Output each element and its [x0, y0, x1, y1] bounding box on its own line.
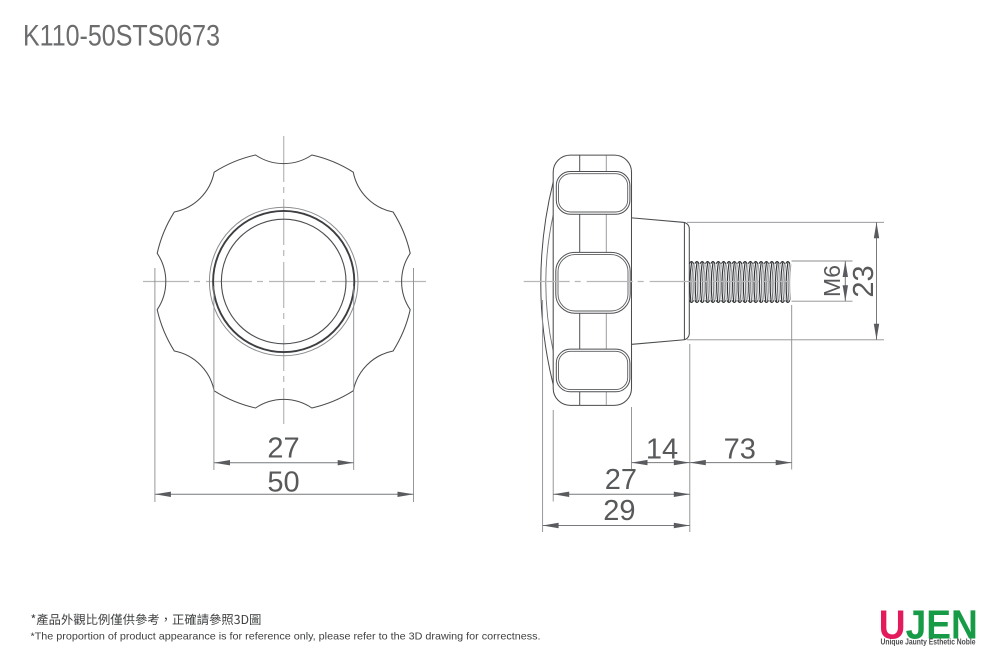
svg-text:27: 27 — [605, 464, 637, 496]
svg-text:M6: M6 — [819, 265, 845, 297]
svg-text:29: 29 — [603, 495, 635, 527]
svg-text:73: 73 — [724, 434, 756, 466]
svg-text:*The proportion of product app: *The proportion of product appearance is… — [31, 631, 541, 643]
svg-text:23: 23 — [848, 265, 880, 297]
svg-text:Unique Jaunty Esthetic Noble: Unique Jaunty Esthetic Noble — [881, 638, 976, 647]
svg-text:14: 14 — [646, 434, 678, 466]
svg-text:50: 50 — [267, 467, 299, 499]
svg-text:K110-50STS0673: K110-50STS0673 — [23, 20, 220, 53]
svg-text:27: 27 — [267, 433, 299, 465]
